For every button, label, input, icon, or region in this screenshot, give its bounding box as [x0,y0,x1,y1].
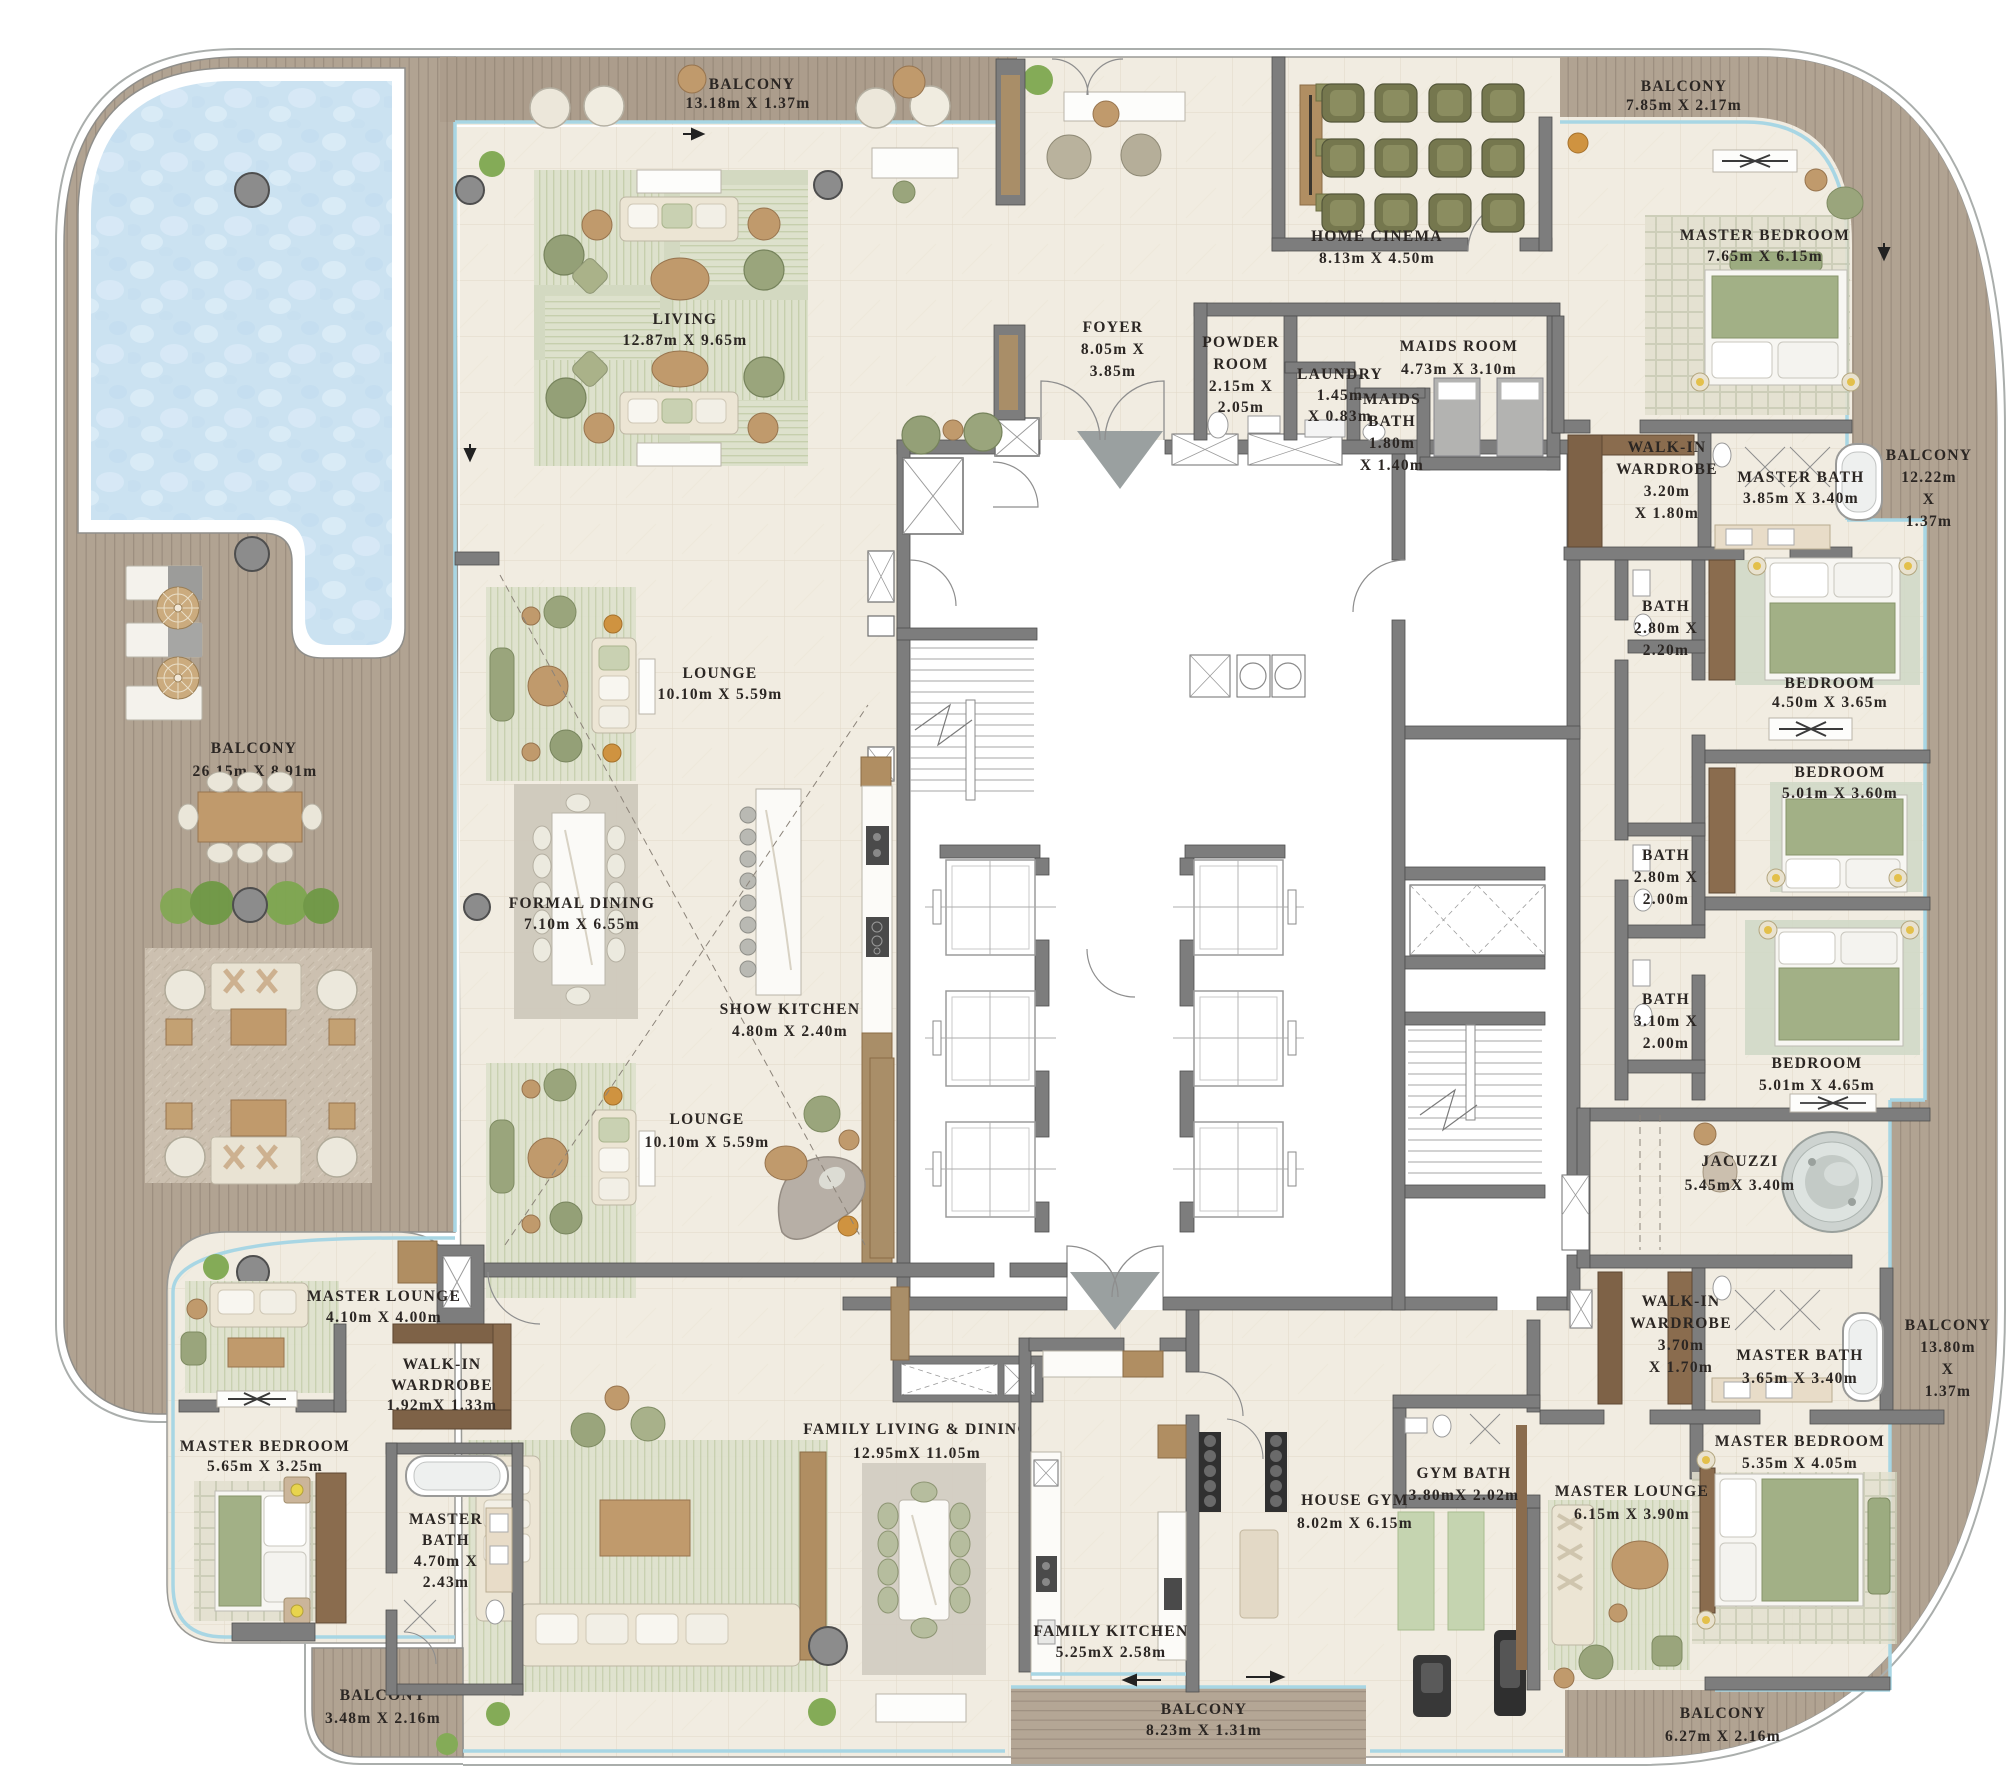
svg-text:12.87m X 9.65m: 12.87m X 9.65m [623,332,748,349]
svg-text:1.37m: 1.37m [1906,513,1953,530]
svg-text:5.01m X 3.60m: 5.01m X 3.60m [1782,785,1898,802]
svg-text:MAIDS ROOM: MAIDS ROOM [1400,338,1518,355]
svg-text:BALCONY: BALCONY [709,76,796,93]
svg-text:10.10m X 5.59m: 10.10m X 5.59m [645,1134,770,1151]
svg-text:BATH: BATH [422,1532,470,1549]
svg-text:4.50m X 3.65m: 4.50m X 3.65m [1772,694,1888,711]
svg-text:BALCONY: BALCONY [1680,1705,1767,1722]
svg-text:BALCONY: BALCONY [1161,1701,1248,1718]
svg-text:BALCONY: BALCONY [1905,1317,1992,1334]
svg-text:LOUNGE: LOUNGE [683,665,758,682]
svg-text:X 1.40m: X 1.40m [1360,457,1424,474]
svg-text:4.80m X 2.40m: 4.80m X 2.40m [732,1023,848,1040]
svg-text:4.70m X: 4.70m X [414,1553,478,1570]
svg-text:FAMILY LIVING & DINING: FAMILY LIVING & DINING [803,1421,1030,1438]
svg-text:3.70m: 3.70m [1658,1337,1705,1354]
svg-text:5.65m X 3.25m: 5.65m X 3.25m [207,1458,323,1475]
svg-text:3.80mX 2.02m: 3.80mX 2.02m [1409,1487,1520,1504]
svg-text:MASTER BEDROOM: MASTER BEDROOM [1680,227,1850,244]
svg-text:8.05m X: 8.05m X [1081,341,1145,358]
svg-text:8.02m X 6.15m: 8.02m X 6.15m [1297,1515,1413,1532]
svg-text:BEDROOM: BEDROOM [1795,764,1886,781]
svg-text:MASTER BEDROOM: MASTER BEDROOM [180,1438,350,1455]
svg-text:4.73m X 3.10m: 4.73m X 3.10m [1401,361,1517,378]
svg-text:X 0.83m: X 0.83m [1308,408,1372,425]
svg-text:GYM BATH: GYM BATH [1417,1465,1512,1482]
svg-text:2.43m: 2.43m [423,1574,470,1591]
svg-text:2.20m: 2.20m [1643,642,1690,659]
svg-text:HOUSE GYM: HOUSE GYM [1301,1492,1409,1509]
svg-text:MASTER LOUNGE: MASTER LOUNGE [1555,1483,1709,1500]
svg-text:6.15m X 3.90m: 6.15m X 3.90m [1574,1506,1690,1523]
svg-text:2.15m X: 2.15m X [1209,378,1273,395]
svg-text:8.23m X 1.31m: 8.23m X 1.31m [1146,1722,1262,1739]
svg-text:ROOM: ROOM [1213,356,1268,373]
svg-text:3.20m: 3.20m [1644,483,1691,500]
svg-text:5.35m X 4.05m: 5.35m X 4.05m [1742,1455,1858,1472]
svg-text:BATH: BATH [1368,413,1416,430]
svg-text:HOME CINEMA: HOME CINEMA [1311,228,1443,245]
svg-text:5.45mX 3.40m: 5.45mX 3.40m [1685,1177,1796,1194]
svg-text:WALK-IN: WALK-IN [1628,439,1707,456]
svg-text:FORMAL DINING: FORMAL DINING [509,895,656,912]
svg-text:MASTER BATH: MASTER BATH [1737,469,1864,486]
svg-text:X 1.70m: X 1.70m [1649,1359,1713,1376]
svg-text:5.01m X 4.65m: 5.01m X 4.65m [1759,1077,1875,1094]
svg-text:BEDROOM: BEDROOM [1785,675,1876,692]
svg-text:BALCONY: BALCONY [211,740,298,757]
svg-text:WARDROBE: WARDROBE [1630,1315,1732,1332]
svg-text:MASTER: MASTER [409,1511,483,1528]
svg-text:10.10m X 5.59m: 10.10m X 5.59m [658,686,783,703]
svg-text:13.18m X 1.37m: 13.18m X 1.37m [686,95,811,112]
svg-text:X: X [1942,1361,1955,1378]
svg-text:BALCONY: BALCONY [1886,447,1973,464]
svg-text:LOUNGE: LOUNGE [670,1111,745,1128]
svg-text:5.25mX 2.58m: 5.25mX 2.58m [1056,1644,1167,1661]
svg-text:WALK-IN: WALK-IN [403,1356,482,1373]
svg-text:8.13m X 4.50m: 8.13m X 4.50m [1319,250,1435,267]
svg-text:13.80m: 13.80m [1920,1339,1976,1356]
svg-text:MASTER BEDROOM: MASTER BEDROOM [1715,1433,1885,1450]
svg-text:X: X [1923,491,1936,508]
svg-text:2.00m: 2.00m [1643,891,1690,908]
svg-text:1.45m: 1.45m [1317,387,1364,404]
svg-text:3.48m X 2.16m: 3.48m X 2.16m [325,1710,441,1727]
svg-text:3.10m X: 3.10m X [1634,1013,1698,1030]
svg-text:2.05m: 2.05m [1218,399,1265,416]
svg-text:WALK-IN: WALK-IN [1642,1293,1721,1310]
svg-text:BATH: BATH [1642,847,1690,864]
svg-text:3.85m: 3.85m [1090,363,1137,380]
svg-text:6.27m X 2.16m: 6.27m X 2.16m [1665,1728,1781,1745]
svg-text:1.92mX 1.33m: 1.92mX 1.33m [387,1397,498,1414]
svg-text:MASTER BATH: MASTER BATH [1736,1347,1863,1364]
svg-text:BEDROOM: BEDROOM [1772,1055,1863,1072]
svg-text:LAUNDRY: LAUNDRY [1297,366,1383,383]
svg-text:7.85m X 2.17m: 7.85m X 2.17m [1626,97,1742,114]
svg-text:4.10m X 4.00m: 4.10m X 4.00m [326,1309,442,1326]
svg-text:JACUZZI: JACUZZI [1701,1153,1778,1170]
svg-text:3.65m X 3.40m: 3.65m X 3.40m [1742,1370,1858,1387]
svg-text:12.95mX 11.05m: 12.95mX 11.05m [853,1445,981,1462]
svg-text:LIVING: LIVING [653,311,718,328]
svg-text:7.65m X 6.15m: 7.65m X 6.15m [1707,248,1823,265]
svg-text:FOYER: FOYER [1083,319,1144,336]
svg-text:MAIDS: MAIDS [1363,391,1421,408]
svg-text:WARDROBE: WARDROBE [391,1377,493,1394]
svg-text:2.80m X: 2.80m X [1634,869,1698,886]
svg-text:POWDER: POWDER [1202,334,1280,351]
svg-text:12.22m: 12.22m [1901,469,1957,486]
svg-text:1.37m: 1.37m [1925,1383,1972,1400]
svg-text:FAMILY KITCHEN: FAMILY KITCHEN [1034,1623,1189,1640]
svg-text:SHOW KITCHEN: SHOW KITCHEN [720,1001,861,1018]
svg-text:7.10m X 6.55m: 7.10m X 6.55m [524,916,640,933]
svg-text:X 1.80m: X 1.80m [1635,505,1699,522]
svg-text:2.00m: 2.00m [1643,1035,1690,1052]
svg-text:BATH: BATH [1642,991,1690,1008]
svg-text:WARDROBE: WARDROBE [1616,461,1718,478]
svg-text:BATH: BATH [1642,598,1690,615]
svg-text:BALCONY: BALCONY [1641,78,1728,95]
svg-text:3.85m X 3.40m: 3.85m X 3.40m [1743,490,1859,507]
svg-text:MASTER LOUNGE: MASTER LOUNGE [307,1288,461,1305]
svg-text:2.80m X: 2.80m X [1634,620,1698,637]
svg-text:1.80m: 1.80m [1369,435,1416,452]
